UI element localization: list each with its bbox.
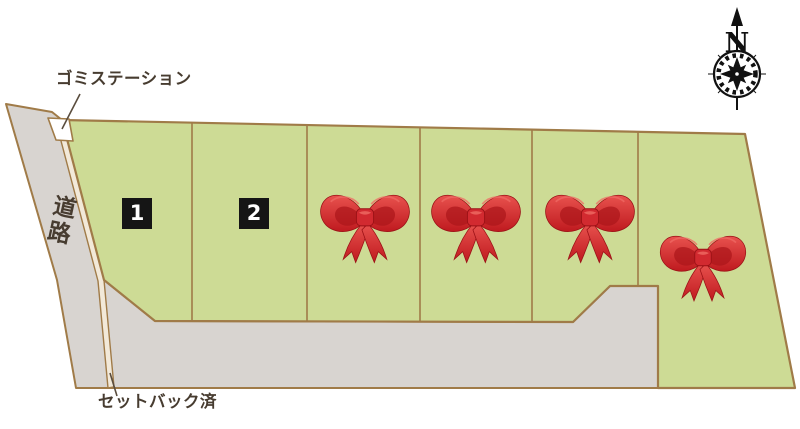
lot-number-badge-1: 1 — [122, 198, 152, 229]
lot-map: N ゴミステーション 道路 セットバック済 1 2 — [0, 0, 800, 429]
site-plan-drawing: N — [0, 0, 800, 429]
lot-number-badge-2: 2 — [239, 198, 269, 229]
garbage-station-label: ゴミステーション — [56, 71, 192, 88]
compass-north-arrow — [731, 7, 743, 26]
setback-done-label: セットバック済 — [98, 394, 217, 411]
compass-north-label: N — [725, 28, 750, 59]
compass-rose: N — [708, 7, 766, 110]
